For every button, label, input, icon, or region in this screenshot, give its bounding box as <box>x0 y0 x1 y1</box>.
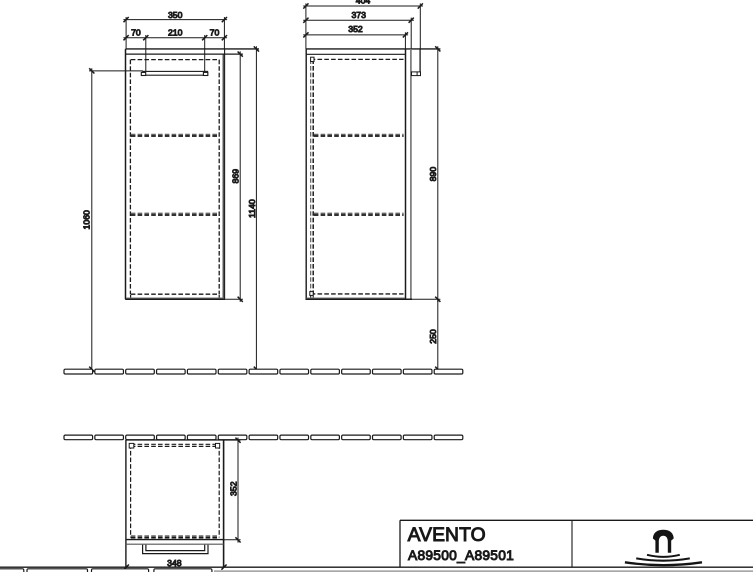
svg-text:1060: 1060 <box>81 210 91 229</box>
svg-text:A89500_A89501: A89500_A89501 <box>408 548 514 563</box>
svg-text:350: 350 <box>168 10 183 20</box>
svg-text:70: 70 <box>131 27 141 37</box>
svg-text:352: 352 <box>348 24 363 34</box>
svg-text:352: 352 <box>228 481 238 496</box>
svg-text:890: 890 <box>428 167 438 182</box>
svg-text:373: 373 <box>351 10 366 20</box>
svg-text:404: 404 <box>356 0 371 5</box>
svg-text:250: 250 <box>428 329 438 344</box>
svg-text:210: 210 <box>168 27 183 37</box>
svg-text:70: 70 <box>210 27 220 37</box>
svg-text:869: 869 <box>230 169 240 184</box>
svg-text:AVENTO: AVENTO <box>408 525 486 546</box>
svg-text:1140: 1140 <box>247 199 257 218</box>
